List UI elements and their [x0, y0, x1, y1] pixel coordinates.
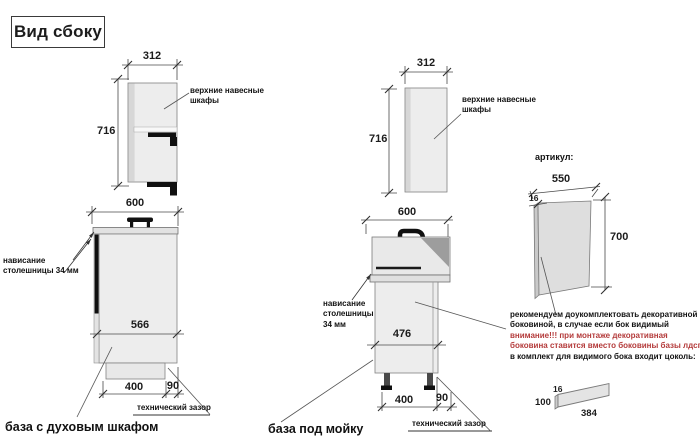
middle-base-width-dim: 600	[398, 206, 416, 218]
page-title: Вид сбоку	[11, 16, 105, 48]
left-upper-width-dim: 312	[143, 50, 161, 62]
side-view-drawing: Вид сбоку 312 716 верхние навесные шкафы…	[0, 0, 700, 438]
middle-upper-height-dim: 716	[369, 133, 387, 145]
left-plinth-width-dim: 400	[125, 381, 143, 393]
left-base-width-dim-lines	[86, 206, 184, 226]
middle-inner-depth-dim: 476	[393, 328, 411, 340]
plinth-panel	[555, 384, 609, 410]
middle-overhang-arrow	[352, 274, 371, 300]
left-upper-cabinet-label: верхние навесные шкафы	[190, 86, 264, 107]
middle-base-caption: база под мойку	[268, 422, 363, 436]
left-base-cabinet	[93, 218, 178, 380]
side-panel-width-dim: 550	[552, 173, 570, 185]
articul-label: артикул:	[535, 152, 573, 164]
decorative-side-panel	[534, 201, 591, 299]
left-upper-height-dim: 716	[97, 125, 115, 137]
side-panel-thickness-dim: 16	[529, 193, 538, 203]
countertop	[370, 275, 450, 282]
oven-door-panel	[95, 235, 99, 314]
note-line-3-warning: внимание!!! при монтаже декоративная	[510, 331, 700, 341]
middle-gap-dim: 90	[436, 392, 448, 404]
plinth-height-dim: 100	[535, 397, 551, 408]
plinth	[106, 363, 165, 379]
note-block: рекомендуем доукомплектовать декоративно…	[510, 310, 700, 362]
plinth-length-dim: 384	[581, 408, 597, 419]
adjustable-feet-icon	[381, 373, 435, 390]
left-upper-cabinet	[128, 83, 177, 196]
middle-gap-label: технический зазор	[412, 419, 486, 429]
left-base-caption: база с духовым шкафом	[5, 420, 158, 434]
note-line-4-warning: боковина ставится вместо боковины базы л…	[510, 341, 700, 351]
left-gap-dim: 90	[167, 380, 179, 392]
side-panel-height-dim: 700	[610, 231, 628, 243]
handle-icon	[127, 218, 153, 228]
note-line-5: в комплект для видимого бока входит цоко…	[510, 352, 700, 362]
middle-caption-leader	[281, 360, 373, 422]
middle-upper-cabinet-label: верхние навесные шкафы	[462, 95, 536, 116]
countertop	[93, 228, 178, 235]
middle-overhang-label: нависание столешницы 34 мм	[323, 299, 377, 330]
plinth-thickness-dim: 16	[553, 384, 562, 394]
middle-upper-cabinet	[405, 88, 447, 192]
left-gap-label: технический зазор	[137, 403, 211, 413]
left-overhang-label: нависание столешницы 34 мм	[3, 256, 85, 277]
middle-plinth-width-dim: 400	[395, 394, 413, 406]
middle-upper-width-dim: 312	[417, 57, 435, 69]
drawing-lines	[0, 0, 700, 438]
left-inner-depth-dim: 566	[131, 319, 149, 331]
cabinet-body	[99, 234, 177, 363]
left-base-width-dim: 600	[126, 197, 144, 209]
note-line-2: боковиной, в случае если бок видимый	[510, 320, 700, 330]
page-title-text: Вид сбоку	[14, 22, 102, 42]
middle-base-cabinet	[370, 231, 450, 390]
note-line-1: рекомендуем доукомплектовать декоративно…	[510, 310, 700, 320]
